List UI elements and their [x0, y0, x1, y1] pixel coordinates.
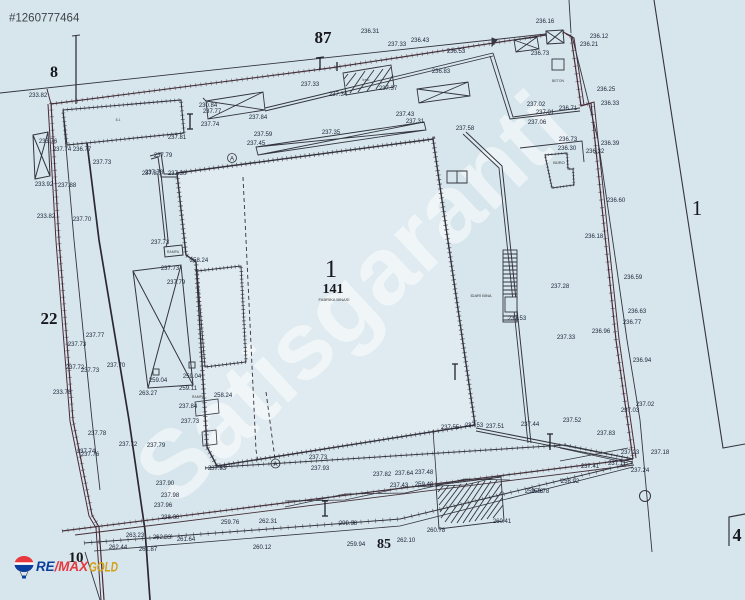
svg-text:237.70: 237.70 [73, 217, 92, 223]
svg-text:237.28: 237.28 [551, 284, 570, 290]
svg-text:GOLD: GOLD [89, 560, 118, 575]
svg-text:RE/MAX: RE/MAX [36, 559, 89, 574]
svg-text:236.18: 236.18 [585, 234, 604, 240]
svg-text:237.70: 237.70 [107, 363, 126, 369]
svg-text:237.98: 237.98 [161, 493, 180, 499]
svg-text:236.12: 236.12 [590, 34, 609, 40]
svg-text:237.77: 237.77 [203, 109, 222, 115]
svg-text:238.00: 238.00 [161, 515, 180, 521]
svg-text:85: 85 [377, 537, 391, 552]
svg-text:233.82: 233.82 [37, 214, 56, 220]
svg-text:237.18: 237.18 [651, 450, 670, 456]
svg-text:237.64: 237.64 [395, 471, 414, 477]
svg-text:237.83: 237.83 [208, 466, 227, 472]
svg-text:236.43: 236.43 [411, 38, 430, 44]
svg-text:259.78: 259.78 [525, 489, 544, 495]
svg-text:236.94: 236.94 [633, 358, 652, 364]
svg-text:237.72: 237.72 [119, 442, 138, 448]
svg-text:236.71: 236.71 [559, 106, 578, 112]
svg-text:290.98: 290.98 [339, 521, 358, 527]
svg-text:236.59: 236.59 [624, 275, 643, 281]
svg-text:237.73: 237.73 [161, 266, 180, 272]
svg-text:237.73: 237.73 [309, 455, 328, 461]
svg-text:237.79: 237.79 [167, 280, 186, 286]
svg-text:237.74: 237.74 [53, 147, 72, 153]
svg-text:237.01: 237.01 [536, 110, 555, 116]
svg-text:237.34: 237.34 [329, 92, 348, 98]
svg-text:A: A [273, 462, 277, 468]
svg-text:259.48: 259.48 [415, 482, 434, 488]
svg-text:237.74: 237.74 [201, 122, 220, 128]
svg-text:259.94: 259.94 [347, 542, 366, 548]
svg-text:236.31: 236.31 [361, 29, 380, 35]
svg-text:236.32: 236.32 [586, 149, 605, 155]
svg-text:İDARİ BİNA: İDARİ BİNA [470, 293, 491, 298]
svg-text:8.1: 8.1 [116, 118, 121, 122]
svg-text:237.90: 237.90 [156, 481, 175, 487]
svg-text:237.76: 237.76 [81, 452, 100, 458]
svg-text:8: 8 [50, 64, 58, 81]
svg-text:237.73: 237.73 [93, 160, 112, 166]
svg-text:237.33: 237.33 [301, 82, 320, 88]
svg-text:237.52: 237.52 [563, 418, 582, 424]
svg-text:236.25: 236.25 [597, 87, 616, 93]
svg-text:RAMPA: RAMPA [192, 395, 205, 399]
svg-text:237.41: 237.41 [581, 464, 600, 470]
svg-text:237.82: 237.82 [373, 472, 392, 478]
svg-text:237.83: 237.83 [597, 431, 616, 437]
svg-text:237.24: 237.24 [631, 468, 650, 474]
svg-text:237.73: 237.73 [81, 368, 100, 374]
svg-text:259.04: 259.04 [183, 374, 202, 380]
svg-text:237.02: 237.02 [527, 102, 546, 108]
svg-text:262.44: 262.44 [109, 545, 128, 551]
svg-text:4: 4 [733, 525, 742, 545]
svg-text:236.77: 236.77 [623, 320, 642, 326]
svg-text:BETON: BETON [552, 79, 564, 83]
svg-text:141: 141 [323, 282, 344, 297]
svg-text:236.73: 236.73 [531, 51, 550, 57]
svg-text:233.82: 233.82 [29, 93, 48, 99]
svg-text:258.24: 258.24 [214, 393, 233, 399]
svg-text:262.33: 262.33 [153, 535, 172, 541]
svg-text:1: 1 [325, 256, 338, 283]
svg-text:258.92: 258.92 [561, 479, 580, 485]
svg-text:FABRİKA BİNASİ: FABRİKA BİNASİ [319, 297, 350, 302]
svg-text:237.73: 237.73 [68, 342, 87, 348]
svg-text:237.84: 237.84 [249, 115, 268, 121]
svg-text:237.53: 237.53 [465, 423, 484, 429]
svg-text:237.45: 237.45 [247, 141, 266, 147]
svg-text:237.37: 237.37 [379, 86, 398, 92]
svg-text:237.53: 237.53 [508, 316, 527, 322]
svg-text:263.27: 263.27 [139, 391, 158, 397]
svg-text:259.11: 259.11 [179, 386, 198, 392]
svg-text:260.78: 260.78 [427, 528, 446, 534]
svg-text:87: 87 [315, 28, 333, 47]
svg-text:236.33: 236.33 [601, 101, 620, 107]
svg-text:237.88: 237.88 [58, 183, 77, 189]
svg-text:#1260777464: #1260777464 [9, 13, 80, 25]
svg-text:237.59: 237.59 [254, 132, 273, 138]
svg-text:237.51: 237.51 [486, 424, 505, 430]
svg-text:237.79: 237.79 [147, 443, 166, 449]
svg-text:259.76: 259.76 [221, 520, 240, 526]
svg-text:237.35: 237.35 [322, 130, 341, 136]
svg-text:237.82: 237.82 [142, 171, 161, 177]
svg-text:237.55: 237.55 [441, 425, 460, 431]
svg-text:260.12: 260.12 [253, 545, 272, 551]
svg-text:1: 1 [692, 196, 703, 220]
svg-text:261.87: 261.87 [139, 547, 158, 553]
svg-text:trafo: trafo [362, 78, 369, 82]
svg-text:236.53: 236.53 [447, 49, 466, 55]
svg-text:237.93: 237.93 [311, 466, 330, 472]
svg-text:237.36: 237.36 [168, 171, 187, 177]
svg-text:237.84: 237.84 [179, 404, 198, 410]
svg-text:259.04: 259.04 [149, 378, 168, 384]
svg-text:237.23: 237.23 [621, 450, 640, 456]
svg-text:236.60: 236.60 [607, 198, 626, 204]
svg-text:237.44: 237.44 [521, 422, 540, 428]
svg-text:A: A [230, 157, 234, 163]
svg-text:237.03: 237.03 [621, 408, 640, 414]
svg-text:233.76: 233.76 [39, 139, 58, 145]
svg-text:237.33: 237.33 [388, 42, 407, 48]
svg-text:237.77: 237.77 [86, 333, 105, 339]
svg-text:236.63: 236.63 [628, 309, 647, 315]
svg-text:237.73: 237.73 [151, 240, 170, 246]
svg-text:22: 22 [41, 309, 58, 328]
svg-text:261.64: 261.64 [177, 537, 196, 543]
svg-text:237.06: 237.06 [528, 120, 547, 126]
svg-text:236.21: 236.21 [580, 42, 599, 48]
svg-text:RAMPA: RAMPA [167, 250, 180, 254]
svg-text:BÜRO: BÜRO [553, 160, 565, 165]
svg-text:263.23: 263.23 [126, 533, 145, 539]
svg-text:262.31: 262.31 [259, 519, 278, 525]
svg-text:237.31: 237.31 [406, 119, 425, 125]
svg-text:237.78: 237.78 [88, 431, 107, 437]
svg-text:258.24: 258.24 [190, 258, 209, 264]
svg-text:233.78: 233.78 [53, 390, 72, 396]
svg-text:237.11: 237.11 [608, 461, 627, 467]
svg-text:236.39: 236.39 [601, 141, 620, 147]
svg-text:236.73: 236.73 [559, 137, 578, 143]
svg-text:237.96: 237.96 [154, 503, 173, 509]
svg-text:237.81: 237.81 [168, 135, 187, 141]
svg-text:236.96: 236.96 [592, 329, 611, 335]
svg-text:236.83: 236.83 [432, 69, 451, 75]
svg-text:237.48: 237.48 [415, 470, 434, 476]
svg-text:237.73: 237.73 [181, 419, 200, 425]
svg-text:237.33: 237.33 [557, 335, 576, 341]
svg-text:237.79: 237.79 [154, 153, 173, 159]
svg-text:260.41: 260.41 [493, 519, 512, 525]
svg-text:236.30: 236.30 [558, 146, 577, 152]
svg-text:236.77: 236.77 [73, 147, 92, 153]
svg-text:237.43: 237.43 [396, 112, 415, 118]
svg-text:237.43: 237.43 [390, 483, 409, 489]
svg-text:262.10: 262.10 [397, 538, 416, 544]
svg-text:236.16: 236.16 [536, 19, 555, 25]
svg-text:237.58: 237.58 [456, 126, 475, 132]
svg-text:233.92: 233.92 [35, 182, 54, 188]
